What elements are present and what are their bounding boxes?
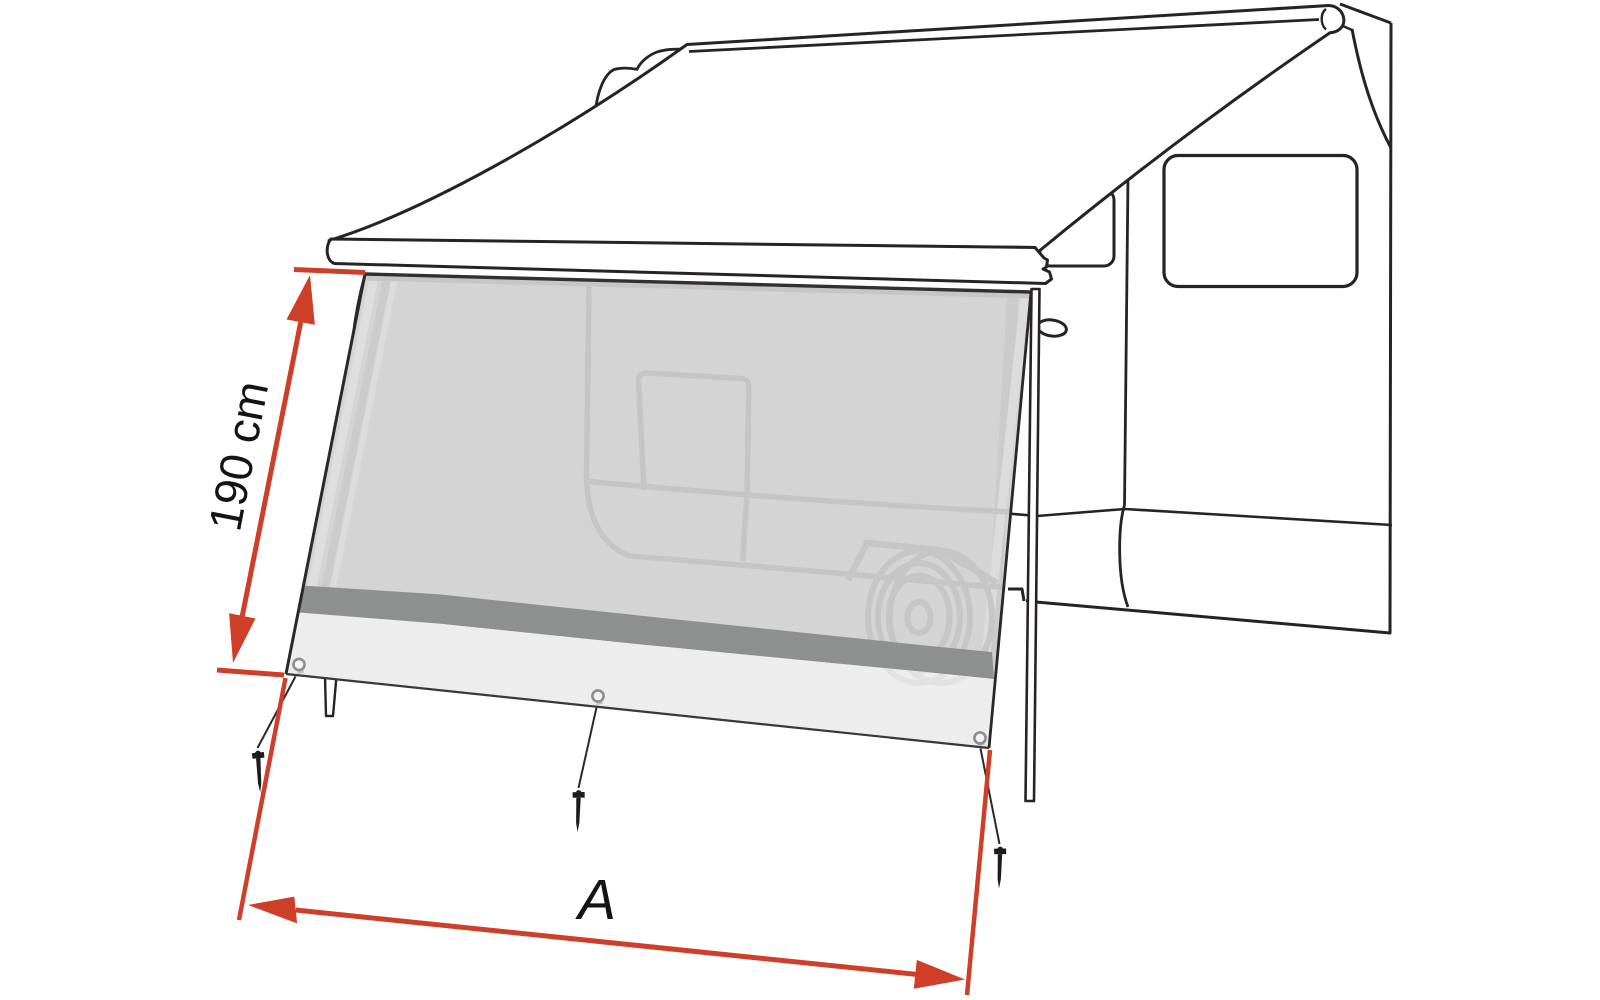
svg-text:A: A — [575, 868, 616, 932]
